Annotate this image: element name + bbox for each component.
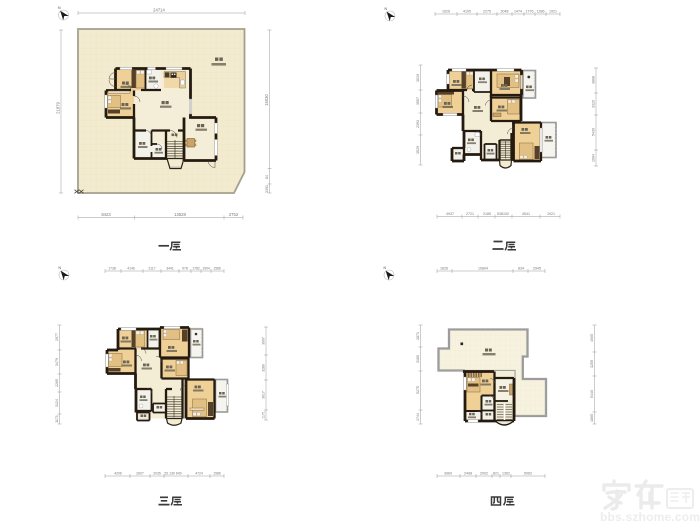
svg-text:2752: 2752 [229,212,239,217]
svg-text:4105: 4105 [463,10,471,14]
svg-text:3320: 3320 [592,100,596,108]
svg-text:1286: 1286 [537,10,545,14]
svg-text:1738: 1738 [108,267,116,271]
svg-text:24714: 24714 [153,8,165,13]
svg-text:2117: 2117 [148,267,155,271]
svg-text:1171: 1171 [55,415,59,423]
svg-text:2945: 2945 [533,267,541,271]
svg-text:10804: 10804 [478,267,488,271]
svg-text:821: 821 [493,472,499,476]
svg-text:3180: 3180 [416,355,420,363]
svg-text:1064: 1064 [592,154,596,162]
svg-text:bbs.szhome.com: bbs.szhome.com [600,510,700,524]
svg-text:84: 84 [265,175,269,179]
svg-text:2607: 2607 [136,472,144,476]
svg-text:2185: 2185 [483,212,491,216]
svg-text:1474: 1474 [514,10,522,14]
svg-text:N: N [384,266,387,270]
svg-text:4206: 4206 [114,472,122,476]
svg-text:3868: 3868 [592,76,596,84]
svg-text:3259: 3259 [590,360,594,368]
svg-text:N: N [385,7,388,11]
svg-text:1904: 1904 [202,267,210,271]
svg-text:1744: 1744 [416,413,420,421]
svg-text:52.130 649: 52.130 649 [165,472,182,476]
svg-text:3557: 3557 [416,97,420,105]
svg-text:1776: 1776 [526,10,534,14]
svg-text:4005: 4005 [590,334,594,342]
svg-text:4541: 4541 [522,212,530,216]
svg-text:3529: 3529 [416,146,420,154]
svg-text:1362: 1362 [502,472,510,476]
svg-text:5062: 5062 [524,472,532,476]
svg-text:16030: 16030 [264,94,269,106]
svg-text:2393: 2393 [416,120,420,128]
svg-text:3124: 3124 [55,399,59,407]
svg-text:2002: 2002 [480,472,488,476]
svg-text:4937: 4937 [446,212,454,216]
svg-text:2977: 2977 [55,333,59,341]
svg-text:N: N [59,266,62,270]
svg-text:3479: 3479 [55,358,59,366]
svg-text:1921: 1921 [547,212,555,216]
svg-text:3617: 3617 [262,391,266,399]
svg-text:978: 978 [182,267,188,271]
svg-text:2498: 2498 [464,472,472,476]
svg-text:2871: 2871 [416,332,420,340]
svg-text:1586: 1586 [213,472,221,476]
svg-text:1865: 1865 [590,414,594,422]
svg-text:538152: 538152 [497,212,509,216]
svg-text:2035: 2035 [153,472,161,476]
svg-text:4724: 4724 [195,472,203,476]
svg-text:3997: 3997 [262,337,266,345]
svg-text:N: N [58,6,61,10]
svg-text:3019: 3019 [416,74,420,82]
svg-text:2265: 2265 [55,379,59,387]
svg-text:1921: 1921 [549,10,557,14]
svg-text:3391: 3391 [265,185,269,193]
svg-text:3289: 3289 [262,364,266,372]
svg-text:5436: 5436 [592,128,596,136]
svg-text:1626: 1626 [442,10,450,14]
svg-text:1626: 1626 [440,267,448,271]
svg-text:2721: 2721 [466,212,474,216]
svg-text:4146: 4146 [127,267,135,271]
svg-text:21879: 21879 [56,102,61,114]
svg-text:5275: 5275 [416,386,420,394]
svg-text:1171: 1171 [262,411,266,418]
svg-text:5440: 5440 [590,390,594,398]
svg-text:1782: 1782 [192,267,200,271]
svg-text:8423: 8423 [101,212,111,217]
svg-text:3441: 3441 [166,267,174,271]
svg-text:13528: 13528 [174,212,186,217]
svg-text:2275: 2275 [483,10,491,14]
svg-text:3969: 3969 [444,472,452,476]
svg-text:834: 834 [518,267,524,271]
svg-text:3048: 3048 [501,10,509,14]
svg-text:1586: 1586 [213,267,221,271]
